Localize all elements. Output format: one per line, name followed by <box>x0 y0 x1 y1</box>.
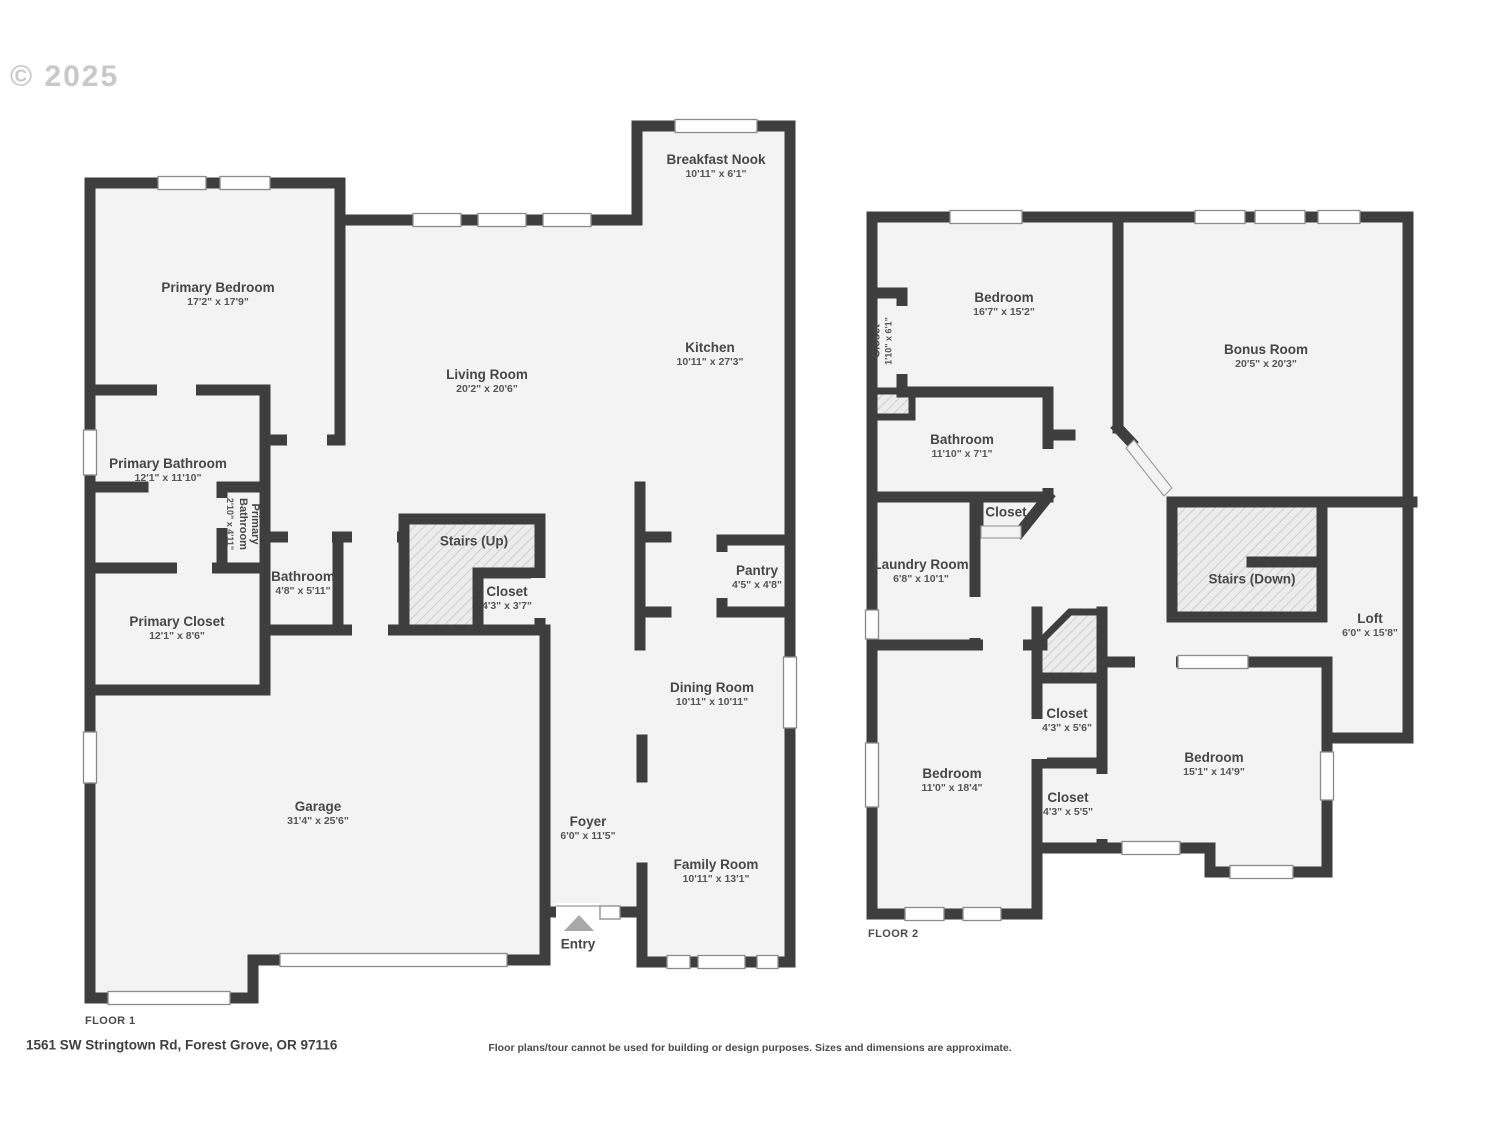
room-name: Foyer <box>560 814 615 829</box>
room-label: Breakfast Nook10'11" x 6'1" <box>666 152 765 180</box>
room-name: Bedroom <box>973 290 1035 305</box>
room-dimensions: 20'2" x 20'6" <box>446 383 528 395</box>
room-dimensions: 6'8" x 10'1" <box>873 573 968 585</box>
room-name: Stairs (Up) <box>440 533 508 548</box>
room-dimensions: 11'0" x 18'4" <box>921 782 982 794</box>
copyright-notice: © 2025 <box>10 60 119 94</box>
room-dimensions: 1'10" x 6'1" <box>884 317 894 365</box>
room-label: Bedroom16'7" x 15'2" <box>973 290 1035 318</box>
room-label: Entry <box>561 936 596 951</box>
room-name: Breakfast Nook <box>666 152 765 167</box>
room-label: Laundry Room6'8" x 10'1" <box>873 557 968 585</box>
room-label: Primary Bedroom17'2" x 17'9" <box>161 280 274 308</box>
floor1-label: FLOOR 1 <box>85 1015 135 1027</box>
room-dimensions: 10'11" x 6'1" <box>666 168 765 180</box>
floor-plan-canvas: © 2025 FLOOR 1 FLOOR 2 1561 SW Stringtow… <box>0 0 1500 1125</box>
room-label: Foyer6'0" x 11'5" <box>560 814 615 842</box>
room-dimensions: 4'3" x 5'6" <box>1042 722 1092 734</box>
room-label: Bedroom11'0" x 18'4" <box>921 766 982 794</box>
room-name: Primary Bedroom <box>161 280 274 295</box>
room-dimensions: 10'11" x 10'11" <box>670 696 754 708</box>
room-name: Primary Bathroom <box>236 498 261 550</box>
room-dimensions: 6'0" x 11'5" <box>560 830 615 842</box>
room-dimensions: 4'3" x 3'7" <box>482 600 532 612</box>
room-label: Pantry4'5" x 4'8" <box>732 563 782 591</box>
room-label: Garage31'4" x 25'6" <box>287 799 349 827</box>
room-name: Bedroom <box>921 766 982 781</box>
room-label: Bonus Room20'5" x 20'3" <box>1224 342 1308 370</box>
disclaimer-text: Floor plans/tour cannot be used for buil… <box>488 1042 1011 1054</box>
room-name: Stairs (Down) <box>1208 571 1295 586</box>
room-name: Closet <box>1043 790 1093 805</box>
room-label: Bedroom15'1" x 14'9" <box>1183 750 1245 778</box>
room-name: Living Room <box>446 367 528 382</box>
room-dimensions: 4'8" x 5'11" <box>271 585 335 597</box>
room-dimensions: 20'5" x 20'3" <box>1224 358 1308 370</box>
room-dimensions: 10'11" x 13'1" <box>674 873 759 885</box>
room-dimensions: 6'0" x 15'8" <box>1342 627 1398 639</box>
room-name: Kitchen <box>677 340 744 355</box>
room-dimensions: 12'1" x 11'10" <box>109 472 227 484</box>
room-label: Stairs (Down) <box>1208 571 1295 586</box>
room-name: Laundry Room <box>873 557 968 572</box>
room-dimensions: 11'10" x 7'1" <box>930 448 994 460</box>
room-label: Bathroom4'8" x 5'11" <box>271 569 335 597</box>
room-label: Dining Room10'11" x 10'11" <box>670 680 754 708</box>
room-label: Primary Bathroom12'1" x 11'10" <box>109 456 227 484</box>
room-label: Closet4'3" x 3'7" <box>482 584 532 612</box>
room-dimensions: 4'3" x 5'5" <box>1043 806 1093 818</box>
room-label: Stairs (Up) <box>440 533 508 548</box>
room-label: Closet <box>985 504 1026 519</box>
room-name: Primary Closet <box>129 614 224 629</box>
room-name: Bathroom <box>930 432 994 447</box>
room-label: Closet4'3" x 5'5" <box>1043 790 1093 818</box>
room-name: Entry <box>561 936 596 951</box>
floor2-label: FLOOR 2 <box>868 928 918 940</box>
room-label: Family Room10'11" x 13'1" <box>674 857 759 885</box>
room-label: Closet1'10" x 6'1" <box>870 317 893 365</box>
label-layer: © 2025 FLOOR 1 FLOOR 2 1561 SW Stringtow… <box>0 0 1500 1125</box>
room-name: Family Room <box>674 857 759 872</box>
room-label: Primary Closet12'1" x 8'6" <box>129 614 224 642</box>
room-name: Closet <box>985 504 1026 519</box>
room-name: Garage <box>287 799 349 814</box>
room-dimensions: 31'4" x 25'6" <box>287 815 349 827</box>
room-name: Bathroom <box>271 569 335 584</box>
room-dimensions: 16'7" x 15'2" <box>973 306 1035 318</box>
room-label: Living Room20'2" x 20'6" <box>446 367 528 395</box>
room-name: Closet <box>870 317 882 365</box>
room-dimensions: 10'11" x 27'3" <box>677 356 744 368</box>
room-label: Kitchen10'11" x 27'3" <box>677 340 744 368</box>
room-dimensions: 12'1" x 8'6" <box>129 630 224 642</box>
room-label: Bathroom11'10" x 7'1" <box>930 432 994 460</box>
room-name: Bonus Room <box>1224 342 1308 357</box>
room-dimensions: 2'10" x 4'11" <box>225 498 235 550</box>
room-dimensions: 4'5" x 4'8" <box>732 579 782 591</box>
room-name: Loft <box>1342 611 1398 626</box>
room-label: Primary Bathroom2'10" x 4'11" <box>225 498 261 550</box>
room-label: Closet4'3" x 5'6" <box>1042 706 1092 734</box>
room-name: Pantry <box>732 563 782 578</box>
room-label: Loft6'0" x 15'8" <box>1342 611 1398 639</box>
room-name: Closet <box>482 584 532 599</box>
room-name: Dining Room <box>670 680 754 695</box>
room-dimensions: 17'2" x 17'9" <box>161 296 274 308</box>
room-name: Closet <box>1042 706 1092 721</box>
room-name: Bedroom <box>1183 750 1245 765</box>
address-text: 1561 SW Stringtown Rd, Forest Grove, OR … <box>26 1038 337 1053</box>
room-dimensions: 15'1" x 14'9" <box>1183 766 1245 778</box>
room-name: Primary Bathroom <box>109 456 227 471</box>
